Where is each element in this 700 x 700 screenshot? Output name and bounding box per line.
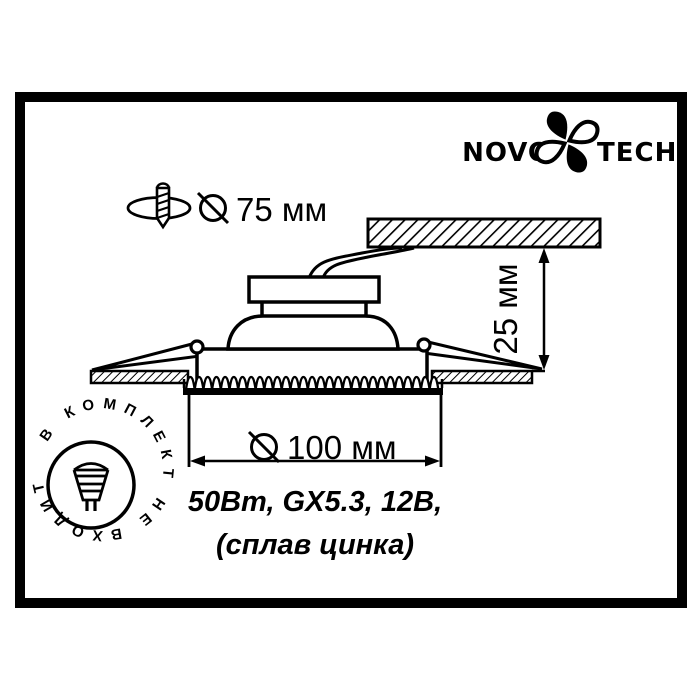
spring-clip-left [92, 344, 200, 370]
mounting-wire [309, 248, 414, 278]
depth-dimension: 25 мм [487, 248, 550, 370]
technical-drawing-page: NOVO TECH 75 мм [0, 0, 700, 700]
clip-pivot-right [418, 339, 430, 351]
drill-hole-icon [128, 184, 190, 228]
spec-line-2: (сплав цинка) [216, 529, 414, 561]
lamp-not-included-badge: В КОМПЛЕКТ НЕ ВХОДИТ [28, 395, 176, 544]
spring-clip-right [424, 342, 542, 369]
novotech-logo: NOVO TECH [462, 109, 677, 174]
diameter-label: 100 мм [287, 429, 397, 466]
cutout-diameter-label: 75 мм [236, 191, 327, 228]
ceiling-panel-right [432, 371, 532, 383]
cutout-note: 75 мм [128, 184, 327, 229]
diameter-sign-icon [249, 432, 279, 462]
lamp-housing-bell [228, 316, 398, 349]
diameter-dimension: 100 мм [190, 429, 440, 467]
heatsink-teeth [186, 377, 438, 390]
depth-label: 25 мм [487, 263, 524, 354]
terminal-block [249, 277, 379, 302]
ceiling-section-bar [368, 219, 600, 247]
heatsink-baseline [183, 388, 443, 395]
clip-pivot-left [191, 341, 203, 353]
ceiling-panel-left [91, 371, 188, 383]
logo-text-right: TECH [597, 138, 677, 168]
fixture-diagram: NOVO TECH 75 мм [0, 0, 700, 700]
spec-line-1: 50Вт, GX5.3, 12В, [188, 486, 442, 518]
diameter-sign-icon [198, 193, 228, 223]
